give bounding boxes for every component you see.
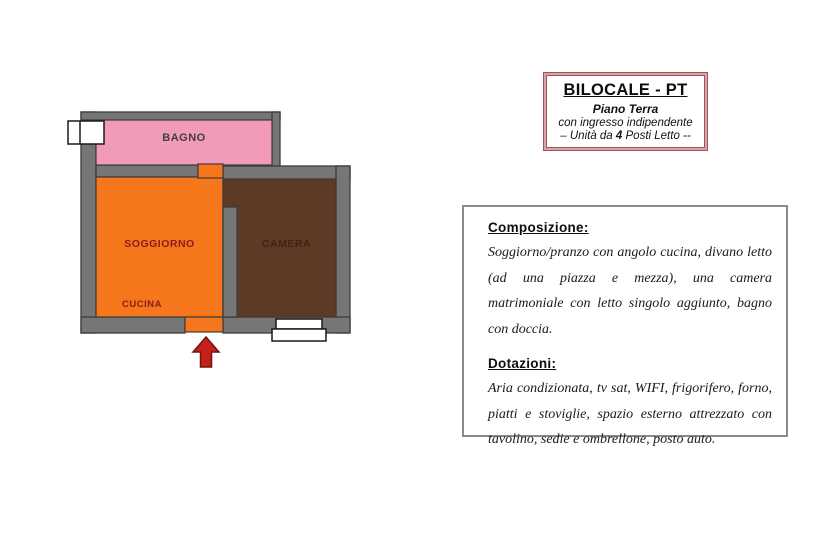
soggiorno-bagno-door xyxy=(198,164,223,178)
composition-text: Soggiorno/pranzo con angolo cucina, diva… xyxy=(488,240,772,342)
unit-title-box: BILOCALE - PT Piano Terra con ingresso i… xyxy=(543,72,708,151)
page: BAGNO SOGGIORNO CUCINA CAMERA BILOCALE -… xyxy=(0,0,820,560)
camera-window-icon xyxy=(272,319,326,341)
features-heading: Dotazioni: xyxy=(488,356,774,371)
unit-beds-suffix: Posti Letto -- xyxy=(622,130,690,142)
entrance-arrow-icon xyxy=(193,337,219,367)
entrance-door-opening xyxy=(185,317,223,332)
unit-line2: con ingresso indipendente xyxy=(547,117,704,129)
camera-left-wall xyxy=(223,207,237,317)
unit-subtitle: Piano Terra xyxy=(547,102,704,116)
unit-title-box-inner: BILOCALE - PT Piano Terra con ingresso i… xyxy=(546,75,705,148)
cucina-label: CUCINA xyxy=(122,298,182,311)
bagno-label: BAGNO xyxy=(96,132,272,145)
unit-beds-prefix: – Unità da xyxy=(560,130,616,142)
unit-beds-line: – Unità da 4 Posti Letto -- xyxy=(547,130,704,142)
soggiorno-label: SOGGIORNO xyxy=(96,238,223,251)
description-box: Composizione: Soggiorno/pranzo con angol… xyxy=(462,205,788,437)
composition-heading: Composizione: xyxy=(488,220,774,235)
unit-title: BILOCALE - PT xyxy=(547,81,704,100)
camera-label: CAMERA xyxy=(237,238,336,251)
features-text: Aria condizionata, tv sat, WIFI, frigori… xyxy=(488,376,772,453)
